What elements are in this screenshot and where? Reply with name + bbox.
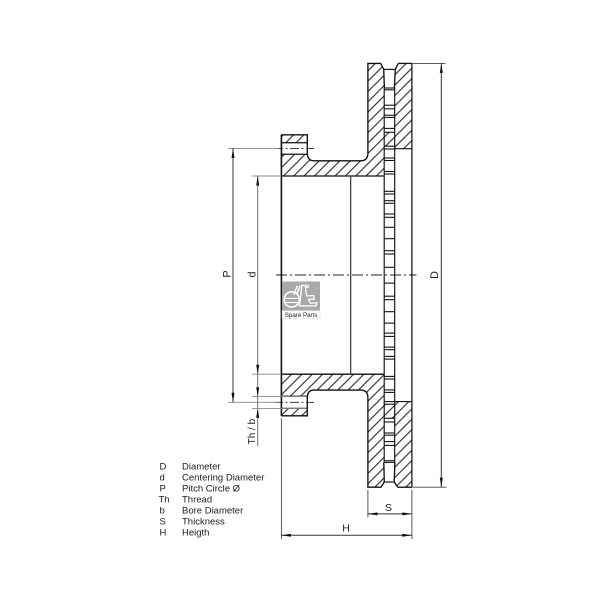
svg-text:Heigth: Heigth [182, 528, 209, 539]
svg-text:Pitch Circle Ø: Pitch Circle Ø [182, 484, 241, 495]
svg-text:Th / b: Th / b [247, 418, 258, 444]
svg-text:S: S [385, 502, 392, 514]
svg-text:Bore Diameter: Bore Diameter [182, 506, 243, 517]
svg-text:b: b [160, 506, 165, 517]
svg-text:Spare Parts: Spare Parts [285, 312, 318, 319]
svg-text:Diameter: Diameter [182, 462, 221, 473]
svg-text:Th: Th [159, 495, 170, 506]
svg-text:D: D [160, 462, 167, 473]
svg-text:Thickness: Thickness [182, 517, 225, 528]
svg-text:Thread: Thread [182, 495, 212, 506]
svg-text:P: P [160, 484, 166, 495]
svg-text:D: D [429, 271, 441, 279]
svg-text:d: d [160, 473, 165, 484]
svg-text:H: H [160, 528, 167, 539]
svg-text:Centering Diameter: Centering Diameter [182, 473, 264, 484]
svg-text:S: S [160, 517, 166, 528]
svg-text:d: d [247, 271, 259, 277]
svg-text:P: P [221, 270, 233, 277]
svg-text:H: H [342, 523, 350, 535]
